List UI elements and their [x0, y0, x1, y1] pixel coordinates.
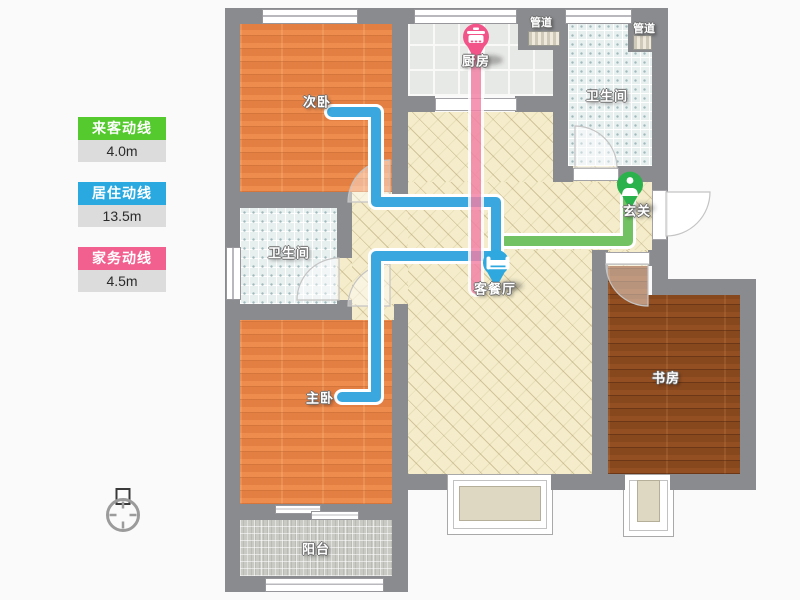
route-guest-casing	[505, 198, 628, 241]
room-label-entry: 玄关	[623, 201, 651, 220]
room-label-bath2: 卫生间	[268, 243, 310, 262]
legend-title-living: 居住动线	[78, 182, 166, 205]
floor-plan: 次卧 厨房 管道 管道 卫生间 玄关 客餐厅 卫生间 主卧 书房 阳台 来客动线…	[0, 0, 800, 600]
room-label-bath1: 卫生间	[586, 86, 628, 105]
legend-item-guest[interactable]: 来客动线 4.0m	[78, 117, 166, 162]
room-label-kitchen: 厨房	[462, 51, 490, 70]
legend-value-guest: 4.0m	[78, 140, 166, 162]
routes-overlay	[0, 0, 800, 600]
legend-title-guest: 来客动线	[78, 117, 166, 140]
door-arc-bath1	[575, 126, 617, 168]
room-label-study: 书房	[652, 368, 680, 387]
legend-title-chore: 家务动线	[78, 247, 166, 270]
room-label-duct2: 管道	[633, 20, 655, 36]
door-arc-entry	[666, 192, 710, 236]
legend-value-living: 13.5m	[78, 205, 166, 227]
compass-icon	[108, 489, 139, 531]
legend-value-chore: 4.5m	[78, 270, 166, 292]
room-label-duct1: 管道	[530, 14, 552, 30]
route-guest	[505, 198, 628, 241]
room-label-balcony: 阳台	[302, 539, 330, 558]
door-arc-study	[606, 264, 648, 306]
room-label-bedroom1: 主卧	[306, 388, 334, 407]
legend-item-living[interactable]: 居住动线 13.5m	[78, 182, 166, 227]
door-arc-bath2	[297, 258, 339, 300]
room-label-bedroom2: 次卧	[303, 92, 331, 111]
legend-item-chore[interactable]: 家务动线 4.5m	[78, 247, 166, 292]
room-label-living: 客餐厅	[474, 279, 516, 298]
